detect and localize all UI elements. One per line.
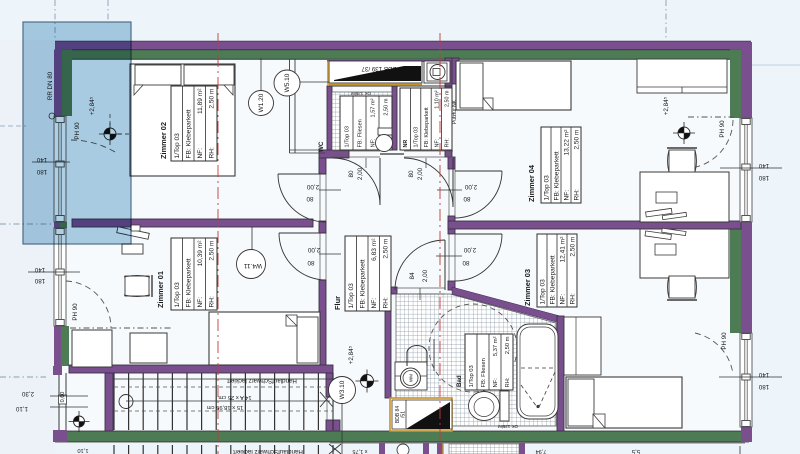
svg-text:HandlaufSchwarz lackiert: HandlaufSchwarz lackiert [227,377,297,384]
svg-text:12,41 m²: 12,41 m² [559,236,566,263]
svg-text:2,00: 2,00 [463,246,476,253]
svg-text:Zimmer 01: Zimmer 01 [156,271,165,308]
svg-text:140: 140 [34,266,45,273]
svg-text:NR: NR [403,140,409,148]
svg-text:WC: WC [318,141,325,152]
svg-text:180: 180 [34,277,45,284]
svg-text:FB: Fliesen: FB: Fliesen [358,119,364,147]
svg-text:2,00: 2,00 [357,167,364,180]
svg-text:6,83 m²: 6,83 m² [371,238,378,261]
svg-text:+2,84⁵: +2,84⁵ [663,96,670,115]
svg-text:NF:: NF: [493,378,499,388]
svg-text:PH 90: PH 90 [721,332,728,350]
svg-text:RH:: RH: [445,138,451,147]
svg-text:W4.11: W4.11 [243,262,262,269]
svg-text:14 A x 25 cm: 14 A x 25 cm [218,394,251,400]
svg-text:1/Top 03: 1/Top 03 [174,133,181,159]
svg-text:/51: /51 [401,411,407,418]
svg-text:FB: Klebeparkett: FB: Klebeparkett [549,255,556,304]
svg-text:2,50 m: 2,50 m [209,240,216,261]
svg-text:Zimmer 03: Zimmer 03 [523,269,532,306]
svg-text:80: 80 [408,170,415,178]
svg-text:1,57 m²: 1,57 m² [371,98,377,117]
svg-text:2,00: 2,00 [464,183,477,190]
svg-text:WM: WM [409,374,414,382]
svg-text:80: 80 [462,259,470,266]
svg-text:Putztür NK: Putztür NK [452,99,458,124]
svg-text:FB: Klebeparkett: FB: Klebeparkett [553,151,560,200]
svg-text:1/Top 03: 1/Top 03 [345,126,351,147]
svg-text:RH:: RH: [209,296,216,308]
svg-text:2,50 m: 2,50 m [209,88,216,109]
svg-text:80: 80 [307,259,315,266]
svg-text:1,10: 1,10 [77,447,88,453]
svg-text:W1.20: W1.20 [258,93,265,112]
svg-text:10,39 m²: 10,39 m² [197,240,204,267]
svg-text:RH:: RH: [573,189,580,201]
svg-text:FB: Fliesen: FB: Fliesen [481,358,487,387]
svg-text:2,30: 2,30 [21,390,34,397]
svg-text:0,60: 0,60 [60,392,66,403]
svg-text:80: 80 [348,170,355,178]
svg-text:FB: Klebeparkett: FB: Klebeparkett [360,259,367,308]
svg-text:FB: Klebeparkett: FB: Klebeparkett [424,107,430,148]
svg-text:140: 140 [758,371,769,378]
svg-text:Zimmer 02: Zimmer 02 [159,122,168,159]
svg-text:Bad: Bad [456,375,463,387]
svg-text:NF:: NF: [197,297,204,308]
svg-text:5,37 m²: 5,37 m² [493,336,499,356]
svg-text:x 1,75: x 1,75 [353,448,368,454]
svg-text:1/Top 03: 1/Top 03 [348,283,355,309]
svg-text:RH:: RH: [569,293,576,305]
svg-text:1/Top 03: 1/Top 03 [174,282,181,308]
svg-text:1/Top 03: 1/Top 03 [543,175,550,201]
svg-text:OK 135lM: OK 135lM [351,91,371,96]
svg-text:5,5: 5,5 [631,448,640,454]
svg-text:80: 80 [463,195,471,202]
svg-text:80: 80 [306,195,314,202]
svg-text:15 x 18,95 cm: 15 x 18,95 cm [207,404,244,410]
svg-text:2,50 m: 2,50 m [383,238,390,259]
svg-text:1/Top 03: 1/Top 03 [539,279,546,305]
svg-text:180: 180 [758,383,769,390]
svg-text:2,50 m: 2,50 m [569,236,576,257]
svg-text:13,22 m²: 13,22 m² [563,129,570,156]
svg-text:2,00: 2,00 [417,167,424,180]
svg-text:84: 84 [409,272,416,280]
svg-text:140: 140 [758,162,769,169]
svg-text:2,50 m: 2,50 m [384,98,390,115]
svg-text:NF:: NF: [371,298,378,309]
svg-text:Zimmer 04: Zimmer 04 [527,164,536,202]
svg-text:RH:: RH: [383,297,390,309]
svg-text:RH:: RH: [209,147,216,159]
svg-text:W5.10: W5.10 [284,73,291,92]
svg-text:NF:: NF: [563,190,570,201]
svg-text:W3.10: W3.10 [339,380,346,399]
svg-text:7,94: 7,94 [536,448,547,454]
svg-text:2,00: 2,00 [306,183,319,190]
svg-text:+2,84⁵: +2,84⁵ [348,345,355,364]
svg-text:2,50 m: 2,50 m [505,336,511,354]
svg-text:2,00: 2,00 [307,246,320,253]
svg-text:1/Top 03: 1/Top 03 [469,365,475,387]
svg-text:NF:: NF: [197,148,204,159]
svg-text:2,50 m: 2,50 m [445,90,451,107]
svg-text:NF:: NF: [434,139,440,148]
svg-text:180: 180 [758,174,769,181]
svg-text:2,50 m: 2,50 m [573,129,580,150]
svg-text:PH 90: PH 90 [719,120,726,138]
svg-text:FB: Klebeparkett: FB: Klebeparkett [186,258,193,307]
svg-text:1,10: 1,10 [15,405,28,412]
svg-text:FB: Klebeparkett: FB: Klebeparkett [186,109,193,158]
svg-text:1/Top 03: 1/Top 03 [414,127,420,148]
svg-text:OK 135lM: OK 135lM [498,424,518,429]
svg-text:HandlaufSchwarz lackiert: HandlaufSchwarz lackiert [233,448,303,454]
svg-text:RH:: RH: [505,377,511,387]
svg-text:11,89 m²: 11,89 m² [197,88,204,114]
svg-text:NF:: NF: [559,294,566,305]
svg-text:1,10 m²: 1,10 m² [434,90,440,108]
svg-text:Flur: Flur [333,296,342,310]
svg-text:2,00: 2,00 [422,269,429,282]
svg-text:PH 90: PH 90 [72,303,79,321]
